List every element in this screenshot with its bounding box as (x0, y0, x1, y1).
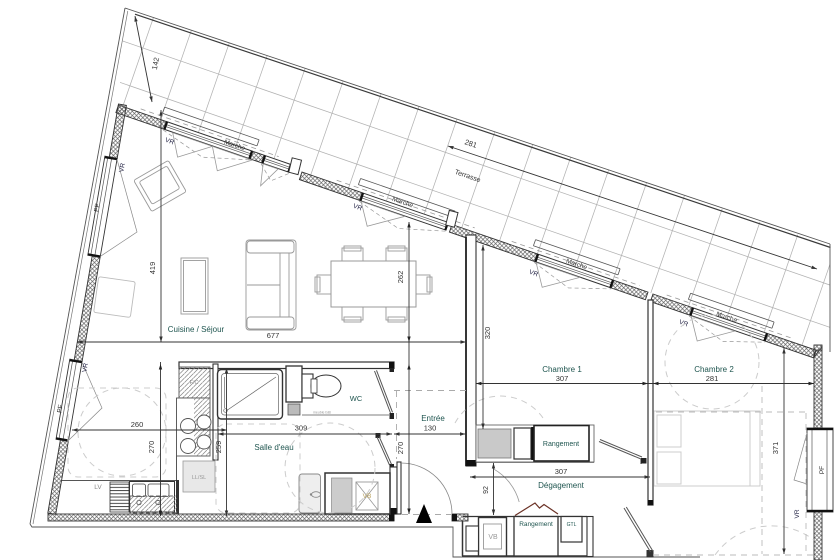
svg-text:Chambre 1: Chambre 1 (542, 365, 582, 374)
svg-text:LV: LV (94, 484, 102, 491)
svg-text:Dégagement: Dégagement (538, 481, 585, 490)
svg-text:VB: VB (488, 534, 498, 541)
svg-text:260: 260 (131, 420, 144, 429)
svg-text:meuble bâti: meuble bâti (313, 411, 331, 415)
svg-text:VR: VR (794, 509, 801, 518)
svg-text:Rangement: Rangement (543, 441, 579, 448)
svg-text:PF: PF (93, 203, 101, 212)
svg-text:309: 309 (295, 424, 308, 433)
svg-text:307: 307 (555, 467, 568, 476)
svg-text:GTL: GTL (567, 522, 577, 528)
svg-text:130: 130 (424, 424, 437, 433)
svg-text:Cuisine / Séjour: Cuisine / Séjour (168, 325, 225, 334)
svg-text:270: 270 (396, 442, 405, 455)
svg-text:677: 677 (267, 331, 280, 340)
svg-text:281: 281 (706, 374, 719, 383)
svg-text:419: 419 (148, 262, 157, 275)
svg-text:Rangement: Rangement (519, 521, 553, 528)
svg-text:307: 307 (556, 374, 569, 383)
svg-text:WC: WC (350, 394, 363, 403)
svg-text:Entrée: Entrée (421, 414, 445, 423)
svg-text:259: 259 (214, 441, 223, 454)
svg-text:F/C: F/C (190, 380, 199, 386)
svg-text:371: 371 (771, 442, 780, 455)
svg-text:PF: PF (819, 466, 826, 474)
svg-text:320: 320 (483, 327, 492, 340)
svg-text:LL/SL: LL/SL (192, 475, 206, 481)
svg-text:270: 270 (147, 441, 156, 454)
svg-text:92: 92 (483, 486, 490, 494)
svg-text:Chambre 2: Chambre 2 (694, 365, 734, 374)
svg-text:PF: PF (56, 404, 64, 413)
svg-text:262: 262 (396, 271, 405, 284)
svg-text:Salle d'eau: Salle d'eau (254, 443, 293, 452)
